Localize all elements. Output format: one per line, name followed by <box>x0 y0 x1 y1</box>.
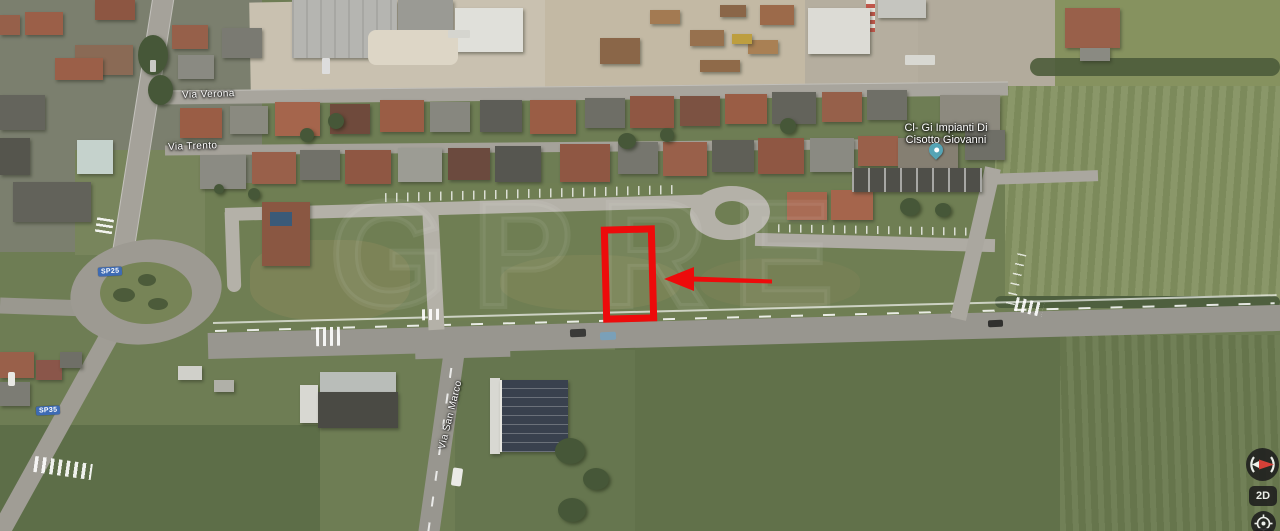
solar-panel-building <box>500 380 568 452</box>
crosswalk <box>316 327 340 347</box>
highlight-rectangle <box>601 225 657 322</box>
poi-label-line2: Cisotto Giovanni <box>880 134 1012 146</box>
street-label-via-trento: Via Trento <box>168 140 218 153</box>
view-toggle-2d-button[interactable]: 2D <box>1249 486 1277 506</box>
pointer-arrow <box>662 262 774 296</box>
compass-needle-icon <box>1246 448 1279 481</box>
road-shield-sp35: SP35 <box>36 405 61 415</box>
poi-label[interactable]: Cl- Gi Impianti Di Cisotto Giovanni <box>880 122 1012 146</box>
teal-roof-building <box>77 140 113 174</box>
satellite-map-canvas[interactable]: GPRE Via Verona Via Trento Via San Marco… <box>0 0 1280 531</box>
road-shield-sp25: SP25 <box>98 266 123 276</box>
street-label-via-verona: Via Verona <box>182 88 235 101</box>
field-east <box>995 86 1280 304</box>
crosswalk <box>422 309 442 321</box>
poi-label-line1: Cl- Gi Impianti Di <box>880 122 1012 134</box>
crosswalk <box>95 217 114 234</box>
compass-button[interactable] <box>1246 448 1279 481</box>
